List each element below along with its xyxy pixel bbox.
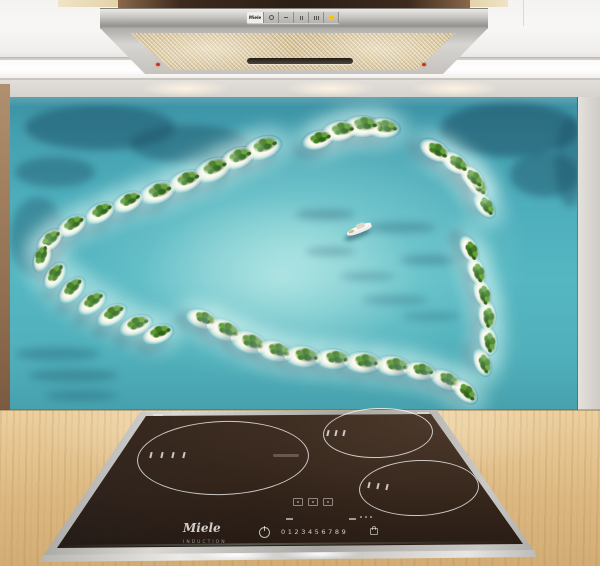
- hood-handle-slot[interactable]: [247, 58, 353, 64]
- zone-label-marks: [273, 454, 299, 457]
- reef-patch: [45, 390, 117, 401]
- digit-key-0[interactable]: 0: [281, 528, 285, 536]
- left-wall-edge: [0, 84, 10, 411]
- reef-patch: [28, 369, 118, 382]
- hood-chimney-strip: [118, 0, 470, 8]
- cooktop-brand-logo: Miele INDUCTION: [183, 523, 243, 548]
- fan-high-icon: [314, 16, 315, 20]
- reef-patch: [15, 347, 100, 361]
- light-indicator: [329, 16, 334, 19]
- digit-key-7[interactable]: 7: [328, 528, 332, 536]
- reef-patch: [402, 312, 460, 321]
- reef-patch: [400, 255, 458, 265]
- zone-select-icon-3[interactable]: [323, 498, 333, 506]
- glass-splashback-heart-islands: [10, 97, 578, 411]
- hood-lamp-left: [156, 63, 160, 66]
- induction-cooktop: Miele INDUCTION 0123456789: [0, 405, 600, 566]
- fan-mid-icon: [300, 16, 301, 20]
- zone-select-icon-1[interactable]: [293, 498, 303, 506]
- reef-patch: [365, 222, 435, 233]
- wall-glow: [140, 80, 230, 97]
- timer-dot-3: [370, 516, 372, 518]
- digit-key-6[interactable]: 6: [321, 528, 325, 536]
- cooktop-brand-text: Miele: [183, 521, 221, 535]
- cooktop-subbrand-text: INDUCTION: [183, 540, 227, 545]
- reef-patch: [295, 209, 355, 220]
- hood-grease-filter: [100, 28, 488, 74]
- cooktop-power-icon[interactable]: [259, 527, 270, 538]
- digit-key-5[interactable]: 5: [315, 528, 319, 536]
- fan-low-icon: [284, 17, 288, 18]
- hood-brand-label: Miele: [247, 12, 264, 23]
- reef-patch: [340, 272, 395, 281]
- reef-patch: [555, 117, 578, 207]
- right-wall: [578, 97, 600, 410]
- panel-top-sheen: [10, 97, 577, 107]
- corner-mark-left: [153, 414, 163, 416]
- digit-key-9[interactable]: 9: [342, 528, 346, 536]
- hood-control-strip: Miele: [247, 12, 339, 23]
- digit-key-2[interactable]: 2: [294, 528, 298, 536]
- hood-lamp-right: [422, 63, 426, 66]
- fan-mid-icon2: [302, 16, 303, 20]
- digit-key-4[interactable]: 4: [308, 528, 312, 536]
- slider-dash-left: [286, 518, 293, 520]
- digit-key-3[interactable]: 3: [301, 528, 305, 536]
- range-hood: Miele: [98, 0, 490, 76]
- reef-patch: [15, 157, 95, 187]
- wall-glow: [285, 80, 375, 97]
- reef-patch: [362, 295, 428, 305]
- reef-patch: [305, 247, 355, 256]
- power-icon: [269, 15, 274, 20]
- timer-dot-2: [365, 516, 367, 518]
- hood-fan-high-button[interactable]: [309, 12, 324, 23]
- hood-light-button[interactable]: [324, 12, 339, 23]
- hood-fan-mid-button[interactable]: [294, 12, 309, 23]
- hood-power-button[interactable]: [264, 12, 279, 23]
- corner-mark-right: [417, 412, 429, 414]
- wall-glow: [410, 80, 500, 97]
- hood-underside: [100, 28, 488, 74]
- digit-key-8[interactable]: 8: [335, 528, 339, 536]
- fan-high-icon3: [318, 16, 319, 20]
- slider-dash-right: [349, 518, 356, 520]
- hood-fan-low-button[interactable]: [279, 12, 294, 23]
- cooktop-digit-slider[interactable]: 0123456789: [281, 528, 346, 536]
- digit-key-1[interactable]: 1: [288, 528, 292, 536]
- timer-dot-1: [360, 516, 362, 518]
- fan-high-icon2: [316, 16, 317, 20]
- cabinet-seam: [523, 0, 524, 26]
- cooktop-lock-icon[interactable]: [370, 528, 378, 535]
- zone-select-icon-2[interactable]: [308, 498, 318, 506]
